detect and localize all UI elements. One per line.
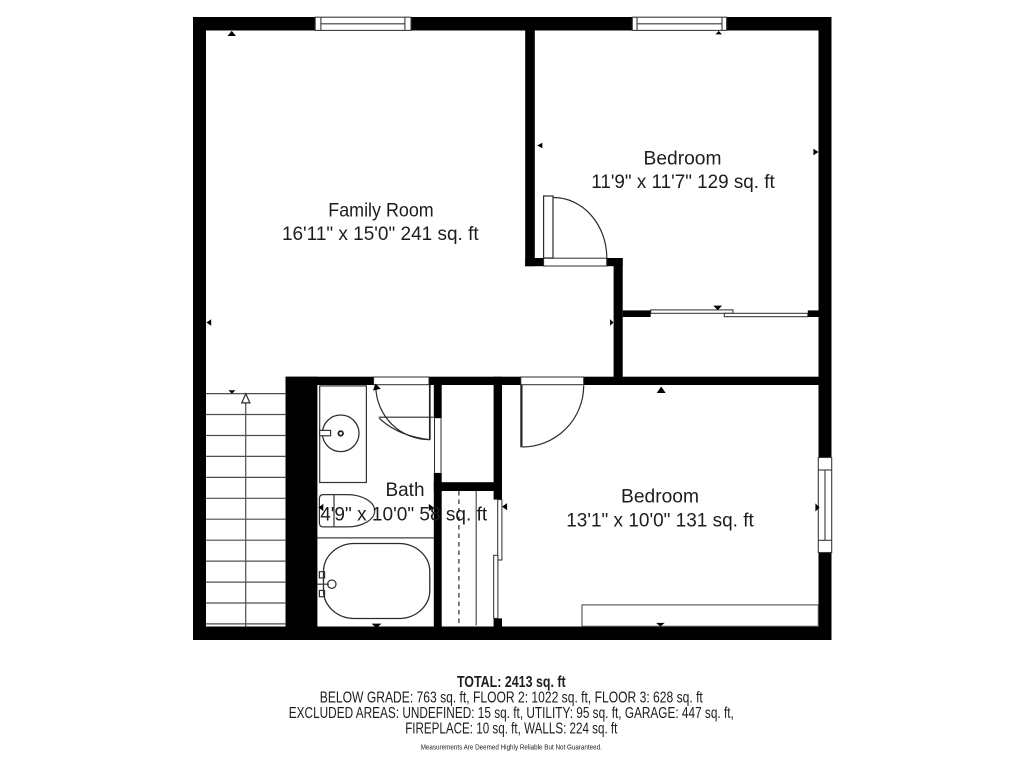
svg-text:11'9" x 11'7" 129 sq. ft: 11'9" x 11'7" 129 sq. ft xyxy=(591,171,775,193)
svg-text:Bedroom: Bedroom xyxy=(644,148,722,170)
svg-text:Bedroom: Bedroom xyxy=(621,485,699,507)
svg-text:FIREPLACE: 10 sq. ft, WALLS: 2: FIREPLACE: 10 sq. ft, WALLS: 224 sq. ft xyxy=(405,720,618,737)
svg-text:13'1" x 10'0" 131 sq. ft: 13'1" x 10'0" 131 sq. ft xyxy=(566,509,754,531)
svg-text:4'9" x 10'0" 58 sq. ft: 4'9" x 10'0" 58 sq. ft xyxy=(320,503,488,525)
svg-text:16'11" x 15'0" 241 sq. ft: 16'11" x 15'0" 241 sq. ft xyxy=(282,223,479,245)
svg-text:Bath: Bath xyxy=(386,479,425,501)
svg-text:EXCLUDED AREAS: UNDEFINED: 15: EXCLUDED AREAS: UNDEFINED: 15 sq. ft, UT… xyxy=(289,705,734,722)
svg-text:BELOW GRADE: 763 sq. ft, FLOOR: BELOW GRADE: 763 sq. ft, FLOOR 2: 1022 s… xyxy=(320,689,703,706)
svg-text:Family Room: Family Room xyxy=(328,199,433,221)
svg-text:Measurements Are Deemed Highly: Measurements Are Deemed Highly Reliable … xyxy=(421,742,602,751)
